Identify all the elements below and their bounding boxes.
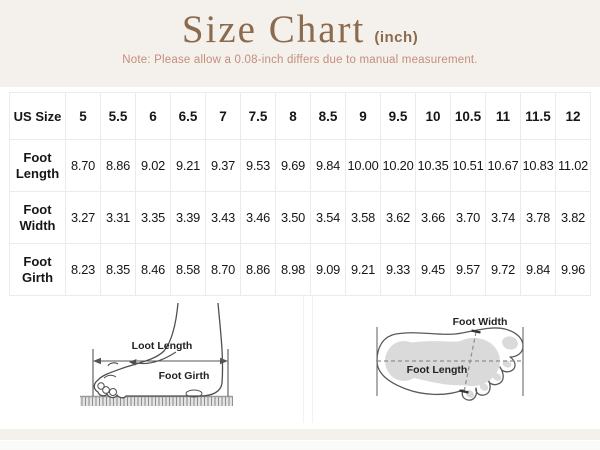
size-header-row: US Size55.566.577.588.599.51010.51111.51…: [10, 93, 591, 140]
diagrams-section: Loot Length Foot Girth: [0, 296, 600, 429]
value-cell: 3.82: [556, 192, 591, 244]
unit-label: (inch): [374, 29, 418, 46]
value-cell: 3.27: [66, 192, 101, 244]
arrowhead-left: [93, 358, 101, 364]
size-column-header: 8.5: [311, 93, 346, 140]
value-cell: 10.00: [346, 140, 381, 192]
side-length-label: Loot Length: [132, 340, 193, 352]
value-cell: 3.46: [241, 192, 276, 244]
value-cell: 8.23: [66, 244, 101, 296]
size-column-header: 10.5: [451, 93, 486, 140]
value-cell: 8.58: [171, 244, 206, 296]
size-column-header: 11.5: [521, 93, 556, 140]
value-cell: 9.45: [416, 244, 451, 296]
value-cell: 8.98: [276, 244, 311, 296]
row-label: Foot Width: [10, 192, 66, 244]
size-column-header: 7: [206, 93, 241, 140]
value-cell: 10.35: [416, 140, 451, 192]
size-column-header: 12: [556, 93, 591, 140]
size-table-section: US Size55.566.577.588.599.51010.51111.51…: [0, 87, 600, 296]
value-cell: 9.21: [346, 244, 381, 296]
value-cell: 3.50: [276, 192, 311, 244]
value-cell: 10.20: [381, 140, 416, 192]
top-length-label: Foot Length: [407, 364, 468, 376]
size-column-header: 7.5: [241, 93, 276, 140]
title-row: Size Chart (inch): [0, 9, 600, 52]
value-cell: 9.96: [556, 244, 591, 296]
row-label: US Size: [10, 93, 66, 140]
size-data-row: Foot Length8.708.869.029.219.379.539.699…: [10, 140, 591, 192]
value-cell: 3.35: [136, 192, 171, 244]
value-cell: 3.62: [381, 192, 416, 244]
size-column-header: 6: [136, 93, 171, 140]
row-label: Foot Length: [10, 140, 66, 192]
ruler: [80, 397, 233, 406]
value-cell: 9.84: [311, 140, 346, 192]
size-column-header: 5: [66, 93, 101, 140]
value-cell: 9.21: [171, 140, 206, 192]
value-cell: 8.70: [206, 244, 241, 296]
measurement-note: Note: Please allow a 0.08-inch differs d…: [0, 54, 600, 66]
size-column-header: 8: [276, 93, 311, 140]
side-girth-label: Foot Girth: [159, 370, 210, 382]
value-cell: 9.37: [206, 140, 241, 192]
value-cell: 3.54: [311, 192, 346, 244]
value-cell: 9.53: [241, 140, 276, 192]
size-data-row: Foot Width3.273.313.353.393.433.463.503.…: [10, 192, 591, 244]
value-cell: 3.66: [416, 192, 451, 244]
size-table: US Size55.566.577.588.599.51010.51111.51…: [9, 92, 591, 296]
value-cell: 9.69: [276, 140, 311, 192]
value-cell: 3.78: [521, 192, 556, 244]
top-width-label: Foot Width: [453, 316, 508, 328]
size-column-header: 9: [346, 93, 381, 140]
row-label: Foot Girth: [10, 244, 66, 296]
value-cell: 10.67: [486, 140, 521, 192]
value-cell: 8.86: [241, 244, 276, 296]
value-cell: 9.57: [451, 244, 486, 296]
value-cell: 9.09: [311, 244, 346, 296]
foot-side-view-diagram: Loot Length Foot Girth: [60, 299, 250, 429]
footer-end-strip: [0, 440, 600, 450]
value-cell: 3.70: [451, 192, 486, 244]
value-cell: 3.39: [171, 192, 206, 244]
value-cell: 9.02: [136, 140, 171, 192]
value-cell: 9.33: [381, 244, 416, 296]
size-column-header: 5.5: [101, 93, 136, 140]
value-cell: 8.35: [101, 244, 136, 296]
header: Size Chart (inch) Note: Please allow a 0…: [0, 0, 600, 87]
size-column-header: 6.5: [171, 93, 206, 140]
value-cell: 3.31: [101, 192, 136, 244]
value-cell: 3.74: [486, 192, 521, 244]
value-cell: 8.70: [66, 140, 101, 192]
size-column-header: 11: [486, 93, 521, 140]
instep-bump: [108, 363, 118, 366]
size-column-header: 9.5: [381, 93, 416, 140]
value-cell: 10.83: [521, 140, 556, 192]
value-cell: 3.43: [206, 192, 241, 244]
page-title: Size Chart: [182, 9, 366, 52]
value-cell: 8.86: [101, 140, 136, 192]
value-cell: 9.84: [521, 244, 556, 296]
size-data-row: Foot Girth8.238.358.468.588.708.868.989.…: [10, 244, 591, 296]
value-cell: 9.72: [486, 244, 521, 296]
foot-top-view-diagram: Foot Width Foot Length: [330, 299, 545, 429]
size-chart-page: Size Chart (inch) Note: Please allow a 0…: [0, 0, 600, 450]
size-column-header: 10: [416, 93, 451, 140]
card-divider: [303, 296, 313, 423]
value-cell: 8.46: [136, 244, 171, 296]
value-cell: 11.02: [556, 140, 591, 192]
arrowhead-right: [220, 358, 228, 364]
value-cell: 10.51: [451, 140, 486, 192]
value-cell: 3.58: [346, 192, 381, 244]
footer-beige-strip: [0, 429, 600, 440]
